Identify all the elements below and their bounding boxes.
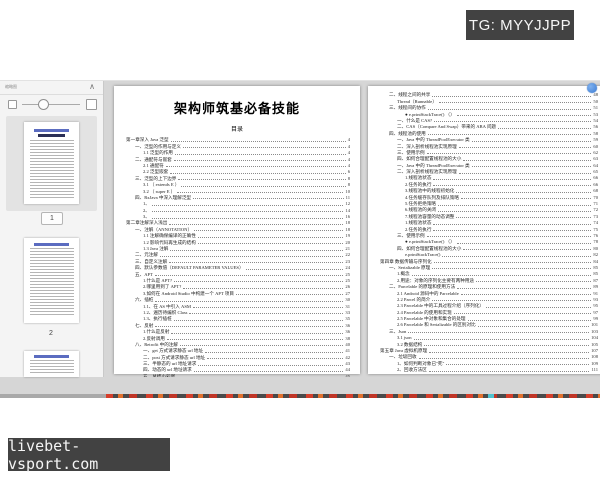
collapse-panel-icon[interactable]: ∧: [89, 82, 95, 91]
thumbnail-shrink-icon[interactable]: [8, 100, 17, 109]
thumb-title-bar: [34, 355, 69, 358]
taskbar-red-dashes: [106, 394, 600, 398]
floating-logo-icon[interactable]: [587, 83, 597, 93]
panel-title: 缩略图: [5, 84, 17, 90]
thumb-title-bar: [34, 129, 69, 132]
thumbnail-page-number-2[interactable]: 2: [44, 328, 58, 339]
thumb-text-lines: [30, 248, 74, 316]
thumb-text-lines: [30, 360, 74, 375]
page-3-thumbnail[interactable]: [24, 351, 79, 377]
thumb-text-lines: [30, 140, 74, 198]
document-page-2: 二、线程之间的共享48Thread（Runnable）50三、线程间的协作51●…: [368, 86, 600, 374]
thumbnail-size-slider: [0, 95, 103, 113]
toc-entry: 五、总结小彩蛋45: [143, 373, 350, 377]
telegram-watermark: TG: MYYJJPP: [466, 10, 574, 40]
toc-left-column: 第一章深入 Java 泛型4一、泛型的作用与定义41.1 泛型的作用4二、通配符…: [114, 137, 360, 377]
taskbar-strip: [0, 394, 600, 398]
thumbnail-slider-knob[interactable]: [38, 99, 49, 110]
taskbar-cyan-dash: [488, 394, 494, 398]
website-watermark: livebet-vsport.com: [8, 438, 170, 471]
document-page-1: 架构师筑基必备技能 目录 第一章深入 Java 泛型4一、泛型的作用与定义41.…: [114, 86, 360, 374]
pdf-viewer-window: 缩略图 ∧ 1 2 架构师筑基必备技能 目录: [0, 80, 600, 394]
thumbnail-slider-track[interactable]: [22, 104, 80, 105]
toc-heading: 目录: [114, 124, 360, 133]
toc-entry: 2、回收方法区111: [397, 367, 598, 373]
page-2-thumbnail[interactable]: [24, 238, 79, 323]
thumbnail-enlarge-icon[interactable]: [86, 99, 97, 110]
thumb-subtitle-bar: [38, 134, 64, 137]
thumbnail-panel: 缩略图 ∧ 1 2: [0, 81, 104, 377]
document-canvas: 架构师筑基必备技能 目录 第一章深入 Java 泛型4一、泛型的作用与定义41.…: [104, 81, 600, 377]
document-title: 架构师筑基必备技能: [114, 86, 360, 117]
thumbnail-page-number-1[interactable]: 1: [41, 212, 63, 225]
thumb-title-bar: [34, 243, 69, 246]
toc-right-column: 二、线程之间的共享48Thread（Runnable）50三、线程间的协作51●…: [368, 86, 600, 373]
page-1-thumbnail[interactable]: [24, 122, 79, 204]
